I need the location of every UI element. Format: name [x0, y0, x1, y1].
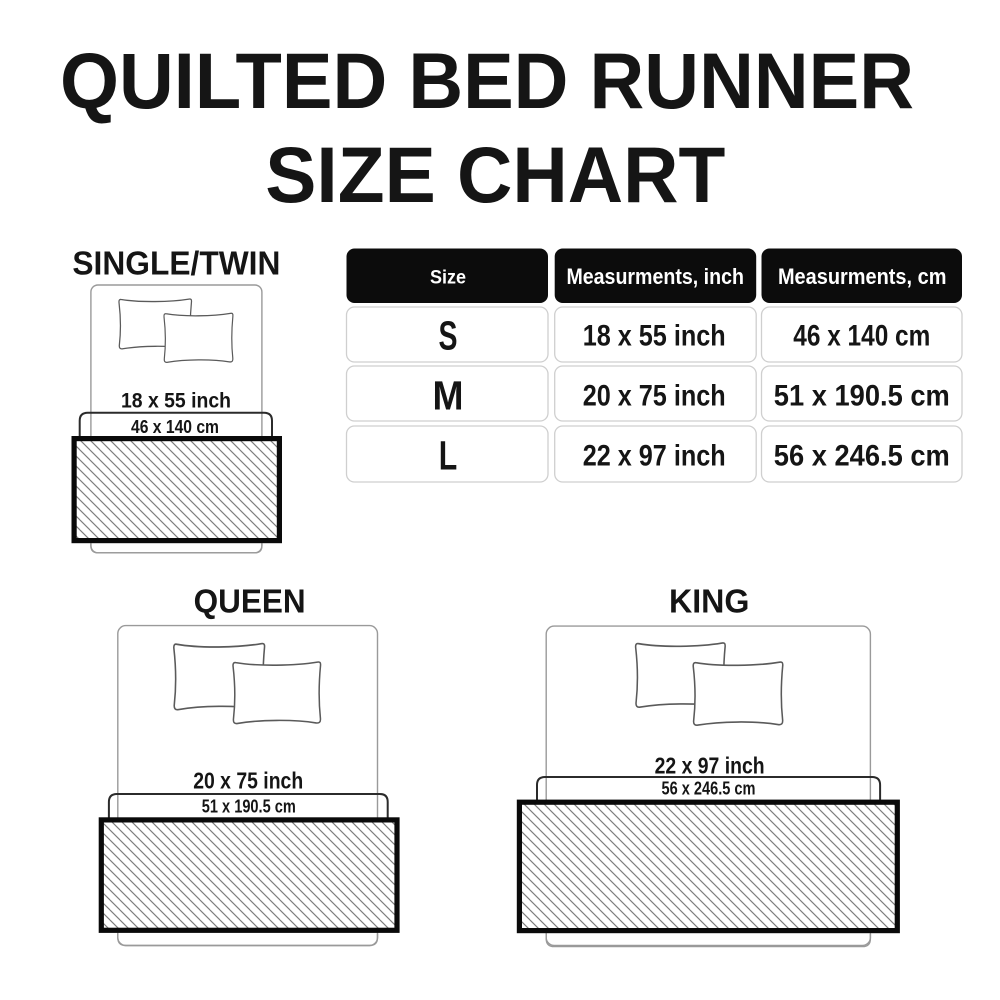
svg-text:51 x 190.5 cm: 51 x 190.5 cm: [202, 797, 296, 817]
svg-text:22 x 97 inch: 22 x 97 inch: [583, 440, 726, 473]
svg-text:46 x 140 cm: 46 x 140 cm: [793, 320, 930, 353]
svg-text:QUILTED BED RUNNER: QUILTED BED RUNNER: [60, 36, 914, 125]
svg-text:56 x 246.5 cm: 56 x 246.5 cm: [662, 778, 756, 798]
svg-text:46 x 140 cm: 46 x 140 cm: [131, 417, 219, 437]
svg-text:SIZE CHART: SIZE CHART: [265, 130, 725, 219]
svg-text:Measurments, cm: Measurments, cm: [778, 264, 947, 289]
svg-text:QUEEN: QUEEN: [194, 583, 306, 620]
svg-text:18 x 55 inch: 18 x 55 inch: [121, 390, 231, 413]
svg-text:22 x 97 inch: 22 x 97 inch: [655, 752, 765, 778]
svg-text:M: M: [433, 373, 464, 419]
svg-text:Measurments, inch: Measurments, inch: [566, 264, 744, 289]
svg-text:SINGLE/TWIN: SINGLE/TWIN: [72, 244, 280, 281]
svg-text:L: L: [439, 433, 458, 479]
svg-text:20 x 75 inch: 20 x 75 inch: [193, 768, 303, 794]
svg-text:18 x 55 inch: 18 x 55 inch: [583, 320, 726, 353]
svg-text:KING: KING: [669, 583, 750, 620]
svg-text:Size: Size: [430, 268, 466, 289]
svg-text:51 x 190.5 cm: 51 x 190.5 cm: [774, 380, 950, 413]
svg-text:56 x 246.5 cm: 56 x 246.5 cm: [774, 440, 950, 473]
svg-text:S: S: [439, 312, 458, 358]
svg-text:20 x 75 inch: 20 x 75 inch: [583, 380, 726, 413]
